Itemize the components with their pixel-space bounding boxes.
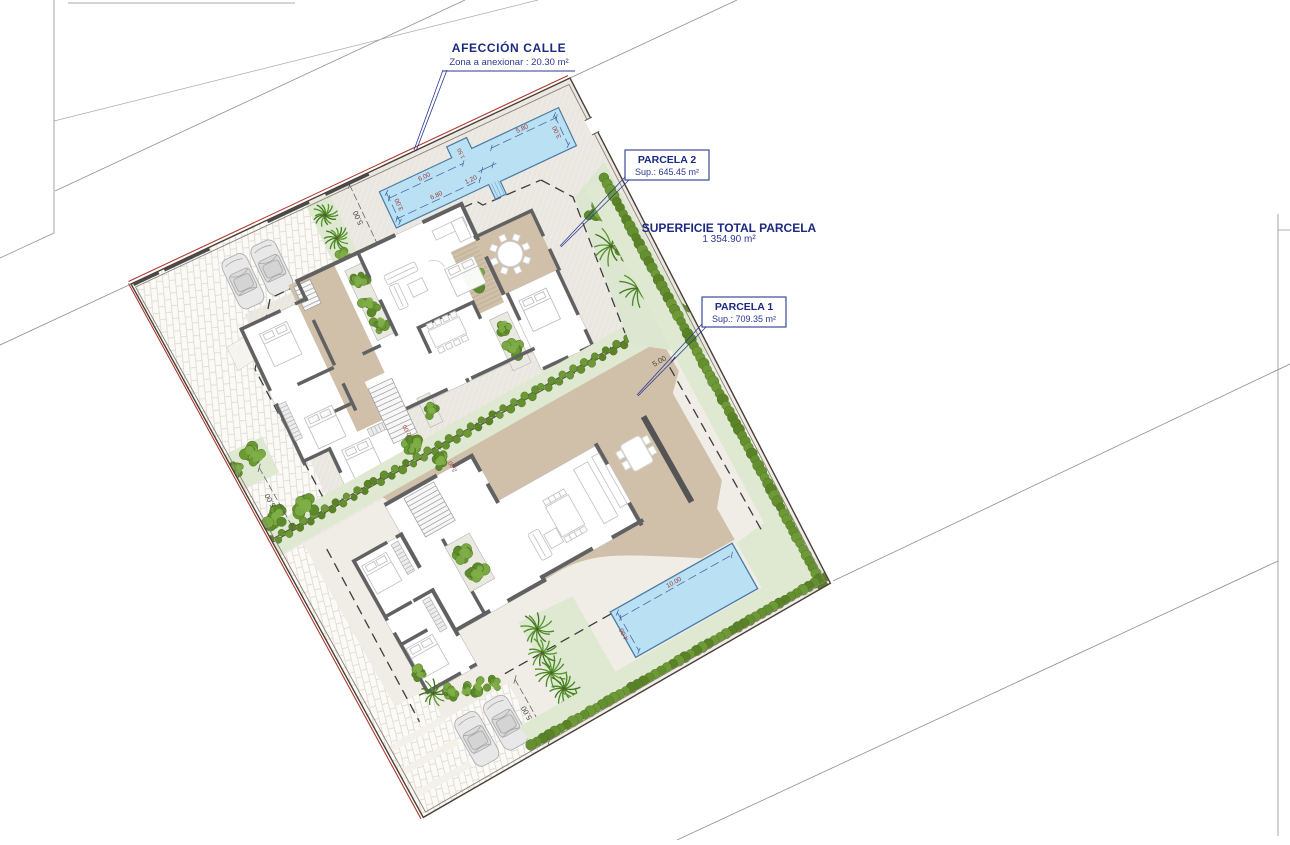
svg-text:Sup.: 709.35 m²: Sup.: 709.35 m²	[712, 314, 776, 324]
svg-text:SUPERFICIE TOTAL PARCELA: SUPERFICIE TOTAL PARCELA	[642, 221, 817, 235]
svg-text:AFECCIÓN CALLE: AFECCIÓN CALLE	[452, 40, 566, 55]
svg-text:PARCELA 1: PARCELA 1	[715, 301, 774, 313]
svg-text:Zona a anexionar : 20.30 m²: Zona a anexionar : 20.30 m²	[449, 57, 568, 68]
svg-text:1 354.90 m²: 1 354.90 m²	[702, 234, 756, 245]
svg-text:Sup.: 645.45 m²: Sup.: 645.45 m²	[635, 167, 699, 177]
svg-text:PARCELA 2: PARCELA 2	[638, 154, 697, 166]
